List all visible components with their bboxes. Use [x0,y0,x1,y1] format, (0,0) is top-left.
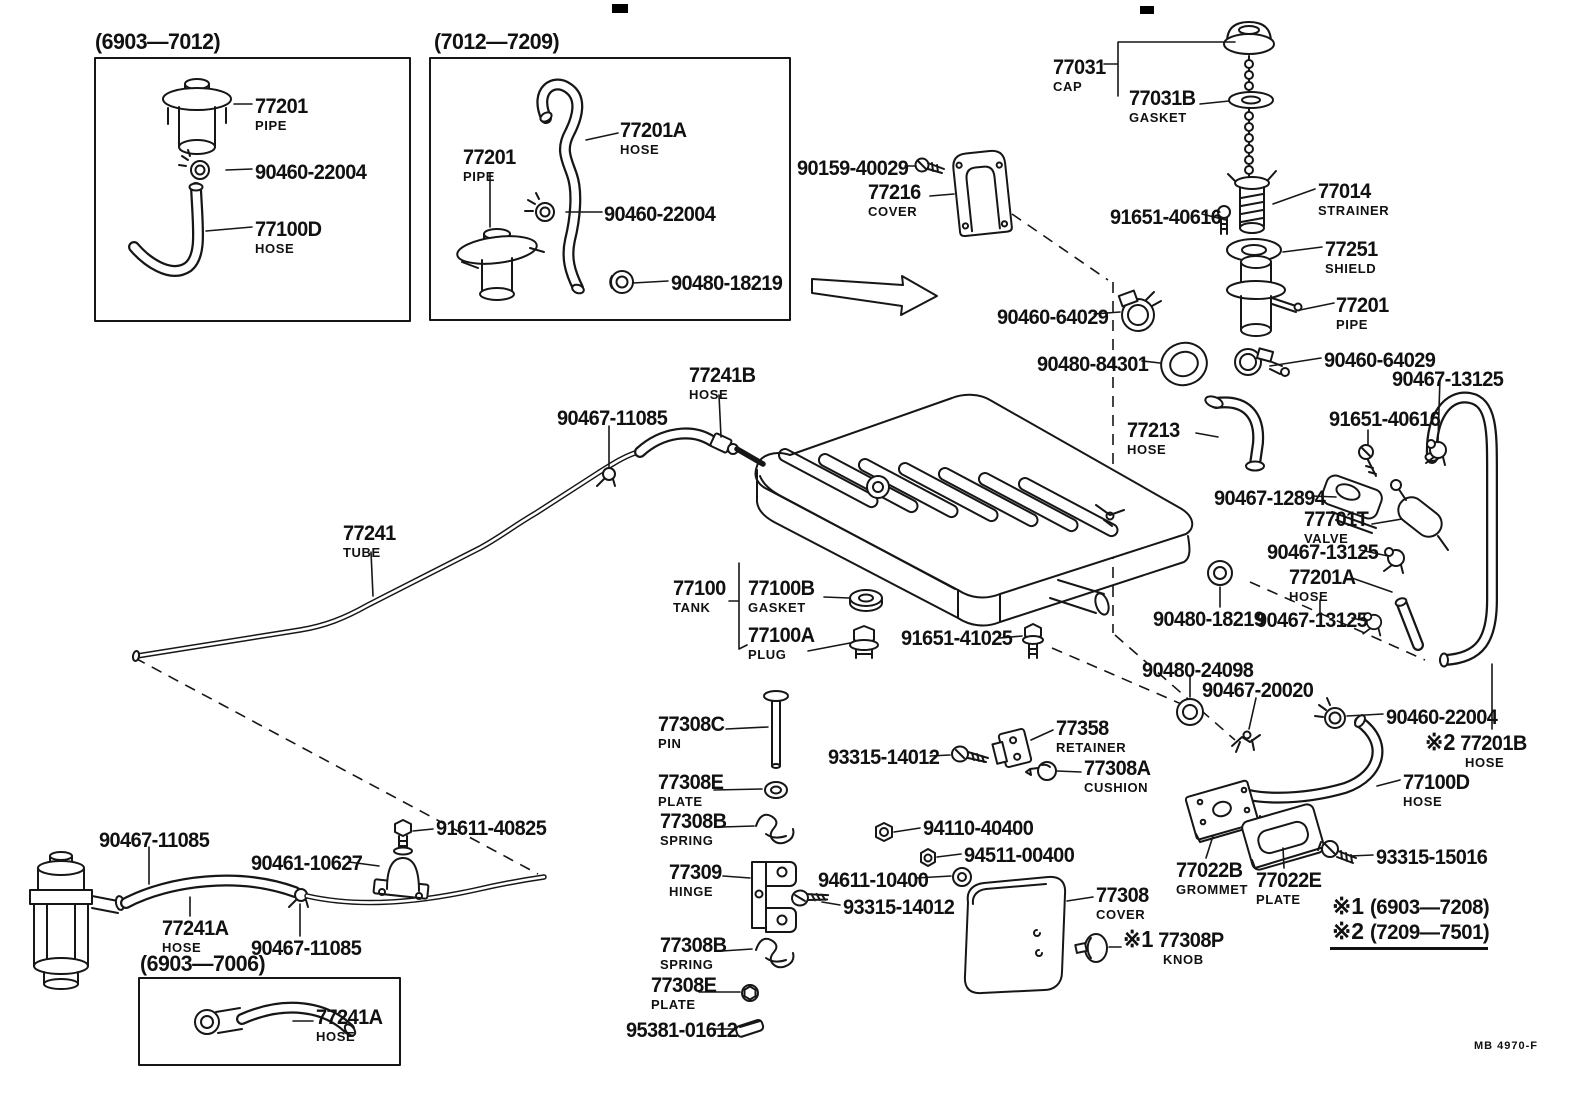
part-number: 90467-11085 [251,938,361,959]
note-1: ※1 (6903—7208) [1332,894,1493,919]
part-label-filter-hose-early: 77241AHOSE [316,1007,386,1043]
part-number: 90467-13125 [1256,610,1367,631]
inset-a-period: (6903—7012) [95,29,220,55]
part-label-nut-2: 94511-00400 [964,845,1080,866]
part-number: ※177308P [1123,928,1224,951]
part-name: HOSE [1465,756,1532,769]
part-name: HINGE [669,885,724,898]
arrow-icon [812,276,937,315]
part-label-filler-lid: 77308COVER [1096,885,1151,921]
part-number: 77308C [658,714,724,735]
part-number: 94511-00400 [964,845,1074,866]
part-number: 77241A [162,918,228,939]
part-label-tube-bracket: 90461-10627 [251,853,368,874]
part-number: 90480-18219 [671,273,782,294]
part-label-clip-hose-a: 90467-11085 [99,830,215,851]
part-label-hose-early: 77100DHOSE [255,219,325,255]
part-name: HOSE [316,1030,386,1043]
inset-b-period: (7012—7209) [434,29,559,55]
part-name: RETAINER [1056,741,1126,754]
part-label-pipe-mid: 77201PIPE [463,147,518,183]
part-label-filter-hose: 77241AHOSE [162,918,232,954]
part-label-valve-hose: 77201AHOSE [1289,567,1359,603]
part-name: SHIELD [1325,262,1380,275]
part-label-cover-spring-1: 77308BSPRING [660,811,730,847]
part-number: ※277201B [1425,731,1527,754]
part-name: HOSE [162,941,232,954]
part-label-clip-hose-b: 90467-11085 [251,938,367,959]
part-number: 77308E [651,975,716,996]
part-label-hose-bottom: 77100DHOSE [1403,772,1473,808]
part-label-cover-cushion: 77308ACUSHION [1084,758,1154,794]
inset-b-parts [456,85,633,300]
part-name: TUBE [343,546,398,559]
part-name: HOSE [689,388,759,401]
part-number: 77031B [1129,88,1195,109]
page-stamp: MB 4970-F [1474,1040,1538,1052]
part-label-washer: 94611-10400 [818,870,934,891]
part-name: PLATE [658,795,727,808]
note-ref-mark: ※2 [1425,729,1455,755]
part-name: HOSE [1127,443,1182,456]
part-label-screw-plate: 93315-15016 [1376,847,1493,868]
part-number: 90460-22004 [1386,707,1497,728]
part-number: 90480-24098 [1142,660,1253,681]
part-number: 90467-13125 [1392,369,1503,390]
part-number: 77308E [658,772,723,793]
part-number: 77308B [660,935,726,956]
part-number: 77241 [343,523,396,544]
part-name: HOSE [255,242,325,255]
part-name: PIPE [255,119,310,132]
part-name: GASKET [748,601,818,614]
part-number: 91611-40825 [436,818,546,839]
cap-assembly [1218,22,1302,336]
application-notes: ※1 (6903—7208) ※2 (7209—7501) [1332,894,1493,950]
part-number: 90467-12894 [1214,488,1325,509]
part-name: STRAINER [1318,204,1389,217]
part-label-tank-gasket: 77100BGASKET [748,578,818,614]
part-number: 90467-20020 [1202,680,1313,701]
part-label-cover-hinge: 77309HINGE [669,862,724,898]
scan-marks [612,4,1154,14]
part-label-cover-retainer: 77358RETAINER [1056,718,1126,754]
part-label-grommet-plate: 77022BGROMMET [1176,860,1248,896]
part-number: 77022B [1176,860,1244,881]
part-label-nut-1: 94110-40400 [923,818,1039,839]
cover-screw-part [916,159,945,174]
inset-a-parts [134,79,231,271]
part-label-screw-retainer: 93315-14012 [828,747,945,768]
hinge-part [752,862,796,932]
part-name: KNOB [1163,953,1229,966]
part-number: 94110-40400 [923,818,1033,839]
part-name: PLATE [1256,893,1325,906]
part-label-lid-knob: ※177308PKNOB [1123,928,1229,966]
part-number: 90467-11085 [99,830,209,851]
part-number: 77241A [316,1007,382,1028]
part-label-clamp-filler-left: 90460-64029 [997,307,1114,328]
part-number: 93315-14012 [828,747,939,768]
part-number: 77201 [1336,295,1389,316]
note-2-text: (7209—7501) [1370,922,1489,944]
part-label-clip-top: 90467-13125 [1392,369,1509,390]
part-name: SPRING [660,958,730,971]
part-label-screw-cover: 90159-40029 [797,158,914,179]
fuel-tube-parts [132,433,763,662]
part-number: 77701T [1304,509,1368,530]
part-name: SPRING [660,834,730,847]
part-number: 90460-22004 [604,204,715,225]
part-label-pipe-tank: 77201PIPE [1336,295,1391,331]
part-number: 77358 [1056,718,1123,739]
part-name: GROMMET [1176,883,1248,896]
part-name: TANK [673,601,728,614]
part-number: 91651-40616 [1329,409,1440,430]
part-number: 91651-40616 [1110,207,1221,228]
part-label-fuel-cap: 77031CAP [1053,57,1108,93]
part-number: 90460-64029 [997,307,1108,328]
part-label-filler-cover: 77216COVER [868,182,923,218]
part-label-ring-filler: 90480-84301 [1037,354,1154,375]
part-label-plate-grommet: 77022EPLATE [1256,870,1325,906]
part-label-hose-late: ※277201BHOSE [1425,731,1532,769]
part-number: 77201 [463,147,516,168]
part-label-clip-breather: 90467-20020 [1202,680,1319,701]
part-number: 77201A [1289,567,1355,588]
part-label-clamp-breather: 90460-22004 [1386,707,1503,728]
note-2: ※2 (7209—7501) [1332,919,1493,944]
part-name: CAP [1053,80,1108,93]
part-number: 77251 [1325,239,1378,260]
part-name: HOSE [1403,795,1473,808]
part-name: PIN [658,737,728,750]
part-number: 90467-13125 [1267,542,1378,563]
part-number: 77213 [1127,420,1180,441]
part-label-cover-clip: 95381-01612 [626,1020,743,1041]
part-number: 77216 [868,182,921,203]
part-number: 93315-14012 [843,897,954,918]
part-label-check-valve: 77701TVALVE [1304,509,1372,545]
part-number: 77100B [748,578,814,599]
part-name: CUSHION [1084,781,1154,794]
part-label-screw-hinge: 93315-14012 [843,897,960,918]
part-label-drain-bolt: 91651-41025 [901,628,1018,649]
part-name: PIPE [1336,318,1391,331]
part-label-grommet-breather: 90480-24098 [1142,660,1259,681]
part-label-hose-mid: 77201AHOSE [620,120,690,156]
note-1-text: (6903—7208) [1370,897,1489,919]
part-number: 77100A [748,625,814,646]
part-number: 77308 [1096,885,1149,906]
part-number: 77201 [255,96,308,117]
part-label-valve-retainer: 90467-12894 [1214,488,1331,509]
part-name: COVER [868,205,923,218]
construction-lines [135,214,1425,874]
part-number: 77100D [1403,772,1469,793]
part-number: 94611-10400 [818,870,928,891]
part-label-fuel-tank: 77100TANK [673,578,728,614]
part-name: PLATE [651,998,720,1011]
part-label-pipe-early: 77201PIPE [255,96,310,132]
part-label-strainer: 77014STRAINER [1318,181,1389,217]
parts-diagram-page: (6903—7012) (7012—7209) (6903—7006) 7720… [0,0,1584,1102]
part-label-cover-pin: 77308CPIN [658,714,728,750]
part-number: 90159-40029 [797,158,908,179]
part-number: 90480-84301 [1037,354,1148,375]
part-name: GASKET [1129,111,1199,124]
part-label-filler-hose: 77213HOSE [1127,420,1182,456]
part-name: PLUG [748,648,818,661]
part-label-cover-spring-2: 77308BSPRING [660,935,730,971]
filler-lid-part [965,877,1065,993]
part-label-grommet-tank: 90480-18219 [1153,609,1270,630]
part-number: 90461-10627 [251,853,362,874]
part-number: 95381-01612 [626,1020,737,1041]
part-number: 77308A [1084,758,1150,779]
part-number: 90480-18219 [1153,609,1264,630]
part-label-cover-plate-1: 77308EPLATE [658,772,727,808]
note-2-mark: ※2 [1332,919,1364,943]
part-label-bolt-strainer: 91651-40616 [1110,207,1227,228]
part-label-shield: 77251SHIELD [1325,239,1380,275]
part-number: 77309 [669,862,722,883]
part-label-cap-gasket: 77031BGASKET [1129,88,1199,124]
part-number: 77100 [673,578,726,599]
part-label-bolt-valve: 91651-40616 [1329,409,1446,430]
inset-c-period: (6903—7006) [140,951,265,977]
part-number: 77014 [1318,181,1386,202]
part-label-bracket-bolt: 91611-40825 [436,818,552,839]
part-label-tube-hose: 77241BHOSE [689,365,759,401]
part-label-clip-mid: 90467-13125 [1267,542,1384,563]
notes-underline [1330,947,1488,950]
part-label-fuel-tube: 77241TUBE [343,523,398,559]
part-number: 77100D [255,219,321,240]
note-ref-mark: ※1 [1123,926,1153,952]
part-label-clip-low: 90467-13125 [1256,610,1373,631]
part-label-cover-plate-2: 77308EPLATE [651,975,720,1011]
part-name: PIPE [463,170,518,183]
part-number: 91651-41025 [901,628,1012,649]
part-number: 77022E [1256,870,1321,891]
part-number: 90460-22004 [255,162,366,183]
part-label-clip-tube: 90467-11085 [557,408,673,429]
part-number: 77308B [660,811,726,832]
part-label-clamp-early: 90460-22004 [255,162,372,183]
part-number: 77201A [620,120,686,141]
part-label-tank-plug: 77100APLUG [748,625,818,661]
note-1-mark: ※1 [1332,894,1364,918]
part-name: COVER [1096,908,1151,921]
filler-cover-part [952,150,1012,237]
part-number: 77031 [1053,57,1106,78]
part-number: 90467-11085 [557,408,667,429]
lid-knob-part [1075,934,1107,962]
part-name: HOSE [1289,590,1359,603]
part-label-grommet-mid: 90480-18219 [671,273,788,294]
part-number: 77241B [689,365,755,386]
part-number: 93315-15016 [1376,847,1487,868]
part-label-clamp-mid: 90460-22004 [604,204,721,225]
part-name: HOSE [620,143,690,156]
